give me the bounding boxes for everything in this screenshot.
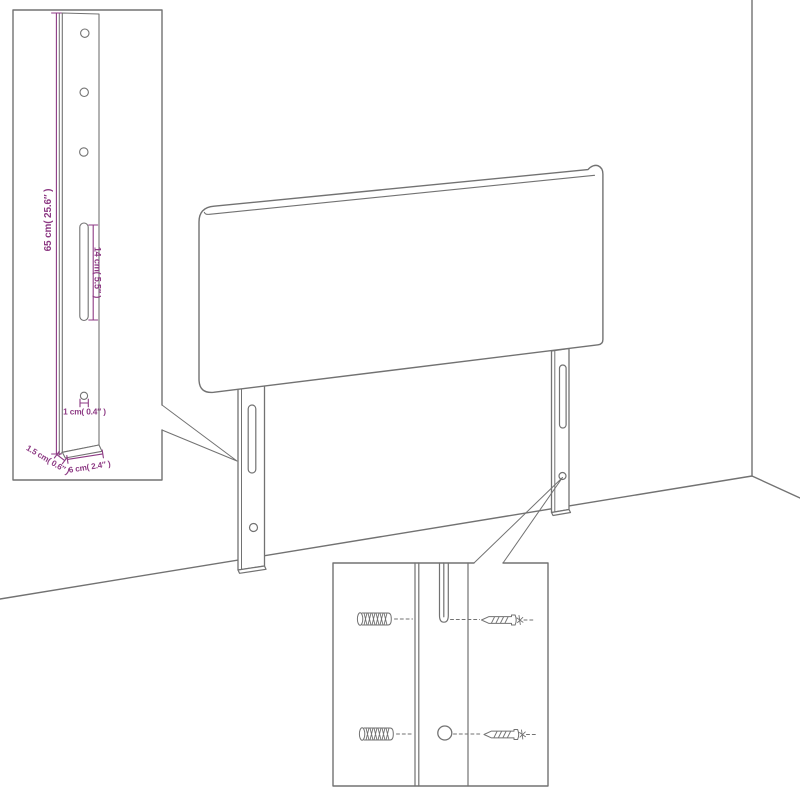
left-leg-screw-hole [250,524,258,532]
right-leg-slot [560,365,567,428]
height-dimension-label: 65 cm( 25.6″ ) [43,189,54,252]
inset-background [333,563,548,786]
adjustment-slot [80,223,88,321]
screw-hole [80,392,87,399]
mounting-hole [81,29,89,37]
leg-detail-drawing [59,13,102,458]
headboard-panel [199,165,603,392]
slot-dimension-label: 14 cm( 5.5″ ) [93,247,103,299]
diagram-canvas: 65 cm( 25.6″ ) 14 cm( 5.5″ ) 1 cm( 0.4″ … [0,0,800,800]
hardware-detail-inset [333,563,548,786]
hole-dimension-label: 1 cm( 0.4″ ) [63,407,106,417]
headboard-assembly-diagram: 65 cm( 25.6″ ) 14 cm( 5.5″ ) 1 cm( 0.4″ … [0,0,800,800]
leg-detail-inset: 65 cm( 25.6″ ) 14 cm( 5.5″ ) 1 cm( 0.4″ … [13,10,162,480]
right-mounting-leg [552,349,571,516]
mounting-hole [80,88,88,96]
left-leg-slot [248,405,256,473]
mounting-hole [80,148,88,156]
screw-hole-closeup [438,726,452,740]
headboard-panel-outline [199,165,603,392]
hardware-detail-callout-lines [474,478,563,564]
left-mounting-leg [238,384,266,573]
right-leg-screw-hole [559,473,566,480]
leg-detail-callout-lines [162,405,237,461]
